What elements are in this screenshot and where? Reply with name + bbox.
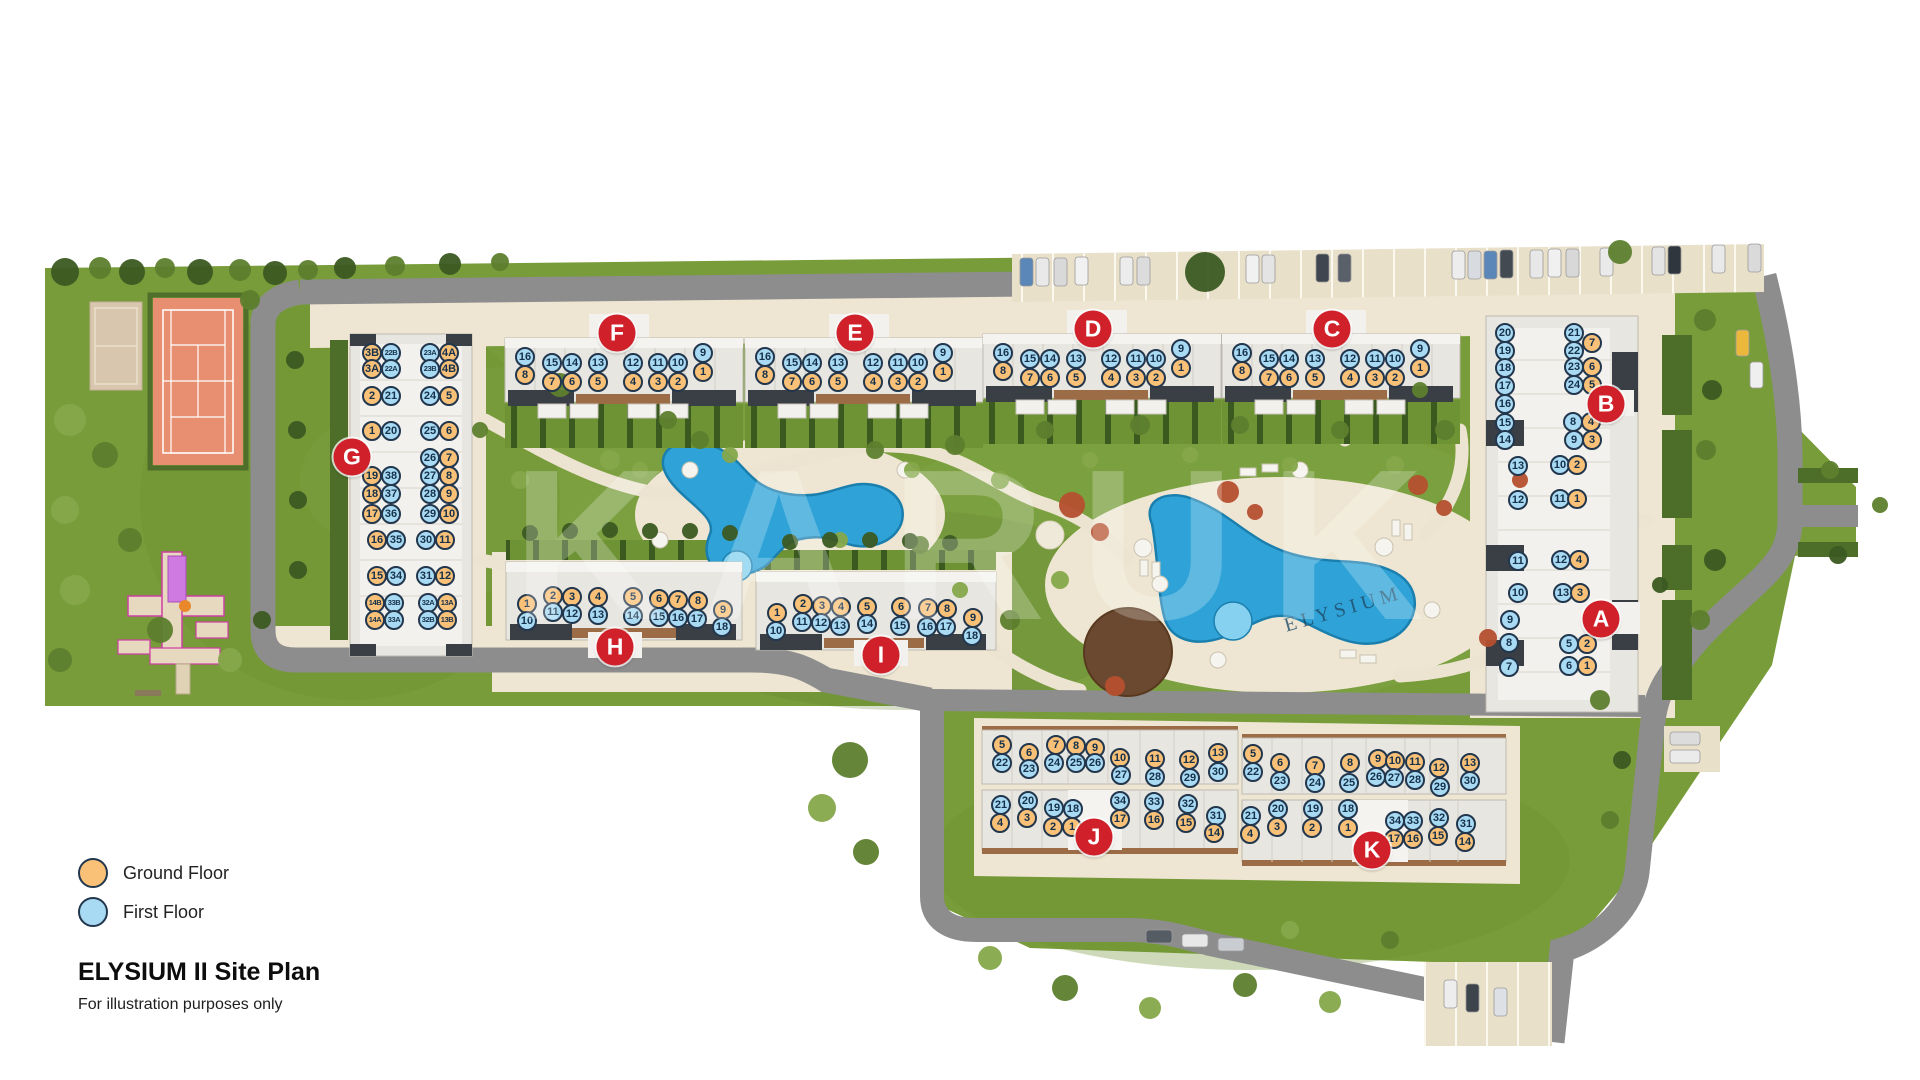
unit-G-33A: 33A (384, 610, 404, 630)
unit-K-16: 16 (1403, 829, 1423, 849)
unit-D-4: 4 (1101, 368, 1121, 388)
unit-I-2: 2 (793, 594, 813, 614)
unit-D-8: 8 (993, 361, 1013, 381)
unit-C-4: 4 (1340, 368, 1360, 388)
unit-I-6: 6 (891, 597, 911, 617)
unit-D-9: 9 (1171, 339, 1191, 359)
unit-K-4: 4 (1240, 824, 1260, 844)
unit-J-23: 23 (1019, 759, 1039, 779)
unit-J-15: 15 (1176, 813, 1196, 833)
site-plan-canvas: ELYSIUM (0, 0, 1920, 1080)
unit-K-8: 8 (1340, 753, 1360, 773)
unit-B-23: 23 (1564, 357, 1584, 377)
units-layer: 16815714613512411310291F1681571461351241… (0, 0, 1920, 1080)
unit-K-25: 25 (1339, 773, 1359, 793)
unit-D-10: 10 (1146, 349, 1166, 369)
building-label-A: A (1583, 601, 1620, 638)
unit-J-7: 7 (1046, 735, 1066, 755)
unit-J-21: 21 (991, 795, 1011, 815)
unit-C-13: 13 (1305, 349, 1325, 369)
unit-B-24: 24 (1564, 375, 1584, 395)
unit-B-13: 13 (1508, 456, 1528, 476)
unit-B-2: 2 (1567, 455, 1587, 475)
unit-I-4: 4 (831, 597, 851, 617)
unit-F-11: 11 (648, 353, 668, 373)
unit-C-6: 6 (1279, 368, 1299, 388)
unit-I-17: 17 (936, 617, 956, 637)
unit-F-12: 12 (623, 353, 643, 373)
unit-E-2: 2 (908, 372, 928, 392)
page-title: ELYSIUM II Site Plan (78, 958, 320, 987)
building-label-B: B (1588, 386, 1625, 423)
building-label-F: F (599, 315, 636, 352)
unit-F-3: 3 (648, 372, 668, 392)
unit-G-5: 5 (439, 386, 459, 406)
unit-K-1: 1 (1338, 818, 1358, 838)
unit-J-13: 13 (1208, 743, 1228, 763)
unit-H-5: 5 (623, 587, 643, 607)
unit-G-20: 20 (381, 421, 401, 441)
unit-K-13: 13 (1460, 753, 1480, 773)
building-label-I: I (863, 637, 900, 674)
unit-K-5: 5 (1243, 744, 1263, 764)
unit-J-34: 34 (1110, 791, 1130, 811)
unit-J-24: 24 (1044, 753, 1064, 773)
unit-I-13: 13 (830, 616, 850, 636)
unit-A-3: 3 (1570, 583, 1590, 603)
unit-G-12: 12 (435, 566, 455, 586)
unit-E-15: 15 (782, 353, 802, 373)
unit-B-7: 7 (1582, 333, 1602, 353)
unit-A-7: 7 (1499, 657, 1519, 677)
unit-I-7: 7 (918, 598, 938, 618)
unit-B-6: 6 (1582, 357, 1602, 377)
unit-G-18: 18 (362, 484, 382, 504)
unit-H-12: 12 (562, 604, 582, 624)
unit-D-2: 2 (1146, 368, 1166, 388)
unit-F-14: 14 (562, 353, 582, 373)
unit-G-4B: 4B (439, 359, 459, 379)
unit-F-8: 8 (515, 365, 535, 385)
unit-J-28: 28 (1145, 767, 1165, 787)
unit-E-5: 5 (828, 372, 848, 392)
unit-I-16: 16 (917, 617, 937, 637)
unit-K-29: 29 (1430, 777, 1450, 797)
unit-J-5: 5 (992, 735, 1012, 755)
unit-J-33: 33 (1144, 792, 1164, 812)
unit-H-16: 16 (668, 608, 688, 628)
unit-F-1: 1 (693, 362, 713, 382)
unit-G-17: 17 (362, 504, 382, 524)
unit-G-7: 7 (439, 448, 459, 468)
unit-G-15: 15 (367, 566, 387, 586)
unit-E-4: 4 (863, 372, 883, 392)
unit-C-1: 1 (1410, 358, 1430, 378)
unit-H-14: 14 (623, 606, 643, 626)
legend-ground-floor: Ground Floor (78, 858, 229, 888)
unit-G-14A: 14A (365, 610, 385, 630)
unit-G-28: 28 (420, 484, 440, 504)
unit-H-15: 15 (649, 607, 669, 627)
unit-F-5: 5 (588, 372, 608, 392)
unit-K-21: 21 (1241, 806, 1261, 826)
unit-J-4: 4 (990, 813, 1010, 833)
unit-F-4: 4 (623, 372, 643, 392)
unit-G-13B: 13B (437, 610, 457, 630)
unit-A-6: 6 (1559, 656, 1579, 676)
unit-D-7: 7 (1020, 368, 1040, 388)
building-label-G: G (334, 439, 371, 476)
unit-G-30: 30 (416, 530, 436, 550)
unit-K-34: 34 (1385, 811, 1405, 831)
unit-G-38: 38 (381, 466, 401, 486)
unit-J-3: 3 (1017, 808, 1037, 828)
unit-I-9: 9 (963, 608, 983, 628)
caption: ELYSIUM II Site Plan For illustration pu… (78, 958, 320, 1014)
unit-K-26: 26 (1366, 767, 1386, 787)
unit-C-9: 9 (1410, 339, 1430, 359)
building-label-K: K (1354, 832, 1391, 869)
unit-K-31: 31 (1456, 814, 1476, 834)
unit-G-25: 25 (420, 421, 440, 441)
ground-floor-swatch-icon (78, 858, 108, 888)
unit-C-12: 12 (1340, 349, 1360, 369)
unit-C-7: 7 (1259, 368, 1279, 388)
unit-A-8: 8 (1499, 633, 1519, 653)
unit-H-6: 6 (649, 589, 669, 609)
unit-E-14: 14 (802, 353, 822, 373)
unit-B-14: 14 (1495, 430, 1515, 450)
unit-E-8: 8 (755, 365, 775, 385)
unit-B-12: 12 (1508, 490, 1528, 510)
unit-J-16: 16 (1144, 810, 1164, 830)
unit-H-13: 13 (588, 605, 608, 625)
unit-J-32: 32 (1178, 794, 1198, 814)
unit-K-32: 32 (1429, 808, 1449, 828)
unit-K-11: 11 (1405, 752, 1425, 772)
unit-I-1: 1 (767, 603, 787, 623)
unit-K-20: 20 (1268, 799, 1288, 819)
unit-K-15: 15 (1428, 826, 1448, 846)
unit-J-17: 17 (1110, 809, 1130, 829)
unit-E-16: 16 (755, 347, 775, 367)
unit-K-18: 18 (1338, 799, 1358, 819)
unit-G-3A: 3A (362, 359, 382, 379)
unit-D-14: 14 (1040, 349, 1060, 369)
legend-label: First Floor (123, 902, 204, 923)
unit-K-22: 22 (1243, 762, 1263, 782)
unit-D-15: 15 (1020, 349, 1040, 369)
unit-J-22: 22 (992, 753, 1012, 773)
page-subtitle: For illustration purposes only (78, 996, 320, 1014)
unit-C-8: 8 (1232, 361, 1252, 381)
unit-G-26: 26 (420, 448, 440, 468)
unit-B-21: 21 (1564, 323, 1584, 343)
unit-J-30: 30 (1208, 762, 1228, 782)
unit-E-6: 6 (802, 372, 822, 392)
unit-G-37: 37 (381, 484, 401, 504)
unit-C-5: 5 (1305, 368, 1325, 388)
building-label-C: C (1314, 311, 1351, 348)
unit-I-12: 12 (811, 613, 831, 633)
unit-G-9: 9 (439, 484, 459, 504)
legend-label: Ground Floor (123, 863, 229, 884)
unit-A-1: 1 (1577, 656, 1597, 676)
unit-A-5: 5 (1559, 634, 1579, 654)
unit-H-11: 11 (543, 602, 563, 622)
unit-C-16: 16 (1232, 343, 1252, 363)
unit-G-22A: 22A (381, 359, 401, 379)
unit-B-18: 18 (1495, 358, 1515, 378)
unit-F-2: 2 (668, 372, 688, 392)
unit-E-9: 9 (933, 343, 953, 363)
unit-H-8: 8 (688, 591, 708, 611)
unit-A-9: 9 (1500, 610, 1520, 630)
unit-D-16: 16 (993, 343, 1013, 363)
unit-A-11: 11 (1508, 551, 1528, 571)
unit-G-23B: 23B (420, 359, 440, 379)
unit-J-26: 26 (1085, 753, 1105, 773)
unit-D-1: 1 (1171, 358, 1191, 378)
unit-F-6: 6 (562, 372, 582, 392)
unit-F-9: 9 (693, 343, 713, 363)
unit-D-5: 5 (1066, 368, 1086, 388)
unit-H-10: 10 (517, 611, 537, 631)
unit-F-13: 13 (588, 353, 608, 373)
unit-K-3: 3 (1267, 817, 1287, 837)
unit-K-12: 12 (1429, 758, 1449, 778)
unit-J-2: 2 (1043, 817, 1063, 837)
unit-K-23: 23 (1270, 771, 1290, 791)
unit-E-7: 7 (782, 372, 802, 392)
building-label-H: H (597, 629, 634, 666)
unit-H-18: 18 (712, 617, 732, 637)
unit-G-36: 36 (381, 504, 401, 524)
unit-K-24: 24 (1305, 773, 1325, 793)
unit-C-15: 15 (1259, 349, 1279, 369)
unit-J-19: 19 (1044, 798, 1064, 818)
unit-E-3: 3 (888, 372, 908, 392)
unit-B-8: 8 (1563, 412, 1583, 432)
unit-G-1: 1 (362, 421, 382, 441)
building-label-D: D (1075, 311, 1112, 348)
first-floor-swatch-icon (78, 897, 108, 927)
unit-C-11: 11 (1365, 349, 1385, 369)
unit-G-10: 10 (439, 504, 459, 524)
unit-J-12: 12 (1179, 750, 1199, 770)
unit-I-15: 15 (890, 616, 910, 636)
unit-J-27: 27 (1111, 765, 1131, 785)
unit-D-3: 3 (1126, 368, 1146, 388)
unit-G-31: 31 (416, 566, 436, 586)
unit-A-2: 2 (1577, 634, 1597, 654)
unit-C-14: 14 (1279, 349, 1299, 369)
unit-J-29: 29 (1180, 768, 1200, 788)
unit-K-6: 6 (1270, 753, 1290, 773)
unit-B-16: 16 (1495, 394, 1515, 414)
unit-K-19: 19 (1303, 799, 1323, 819)
unit-I-18: 18 (962, 626, 982, 646)
unit-G-29: 29 (420, 504, 440, 524)
unit-E-11: 11 (888, 353, 908, 373)
unit-G-16: 16 (367, 530, 387, 550)
unit-J-18: 18 (1063, 799, 1083, 819)
unit-G-11: 11 (435, 530, 455, 550)
unit-H-7: 7 (668, 590, 688, 610)
unit-E-10: 10 (908, 353, 928, 373)
unit-E-1: 1 (933, 362, 953, 382)
unit-K-2: 2 (1302, 818, 1322, 838)
unit-F-16: 16 (515, 347, 535, 367)
unit-C-2: 2 (1385, 368, 1405, 388)
unit-F-7: 7 (542, 372, 562, 392)
unit-G-34: 34 (386, 566, 406, 586)
unit-F-15: 15 (542, 353, 562, 373)
unit-B-20: 20 (1495, 323, 1515, 343)
unit-G-21: 21 (381, 386, 401, 406)
unit-C-3: 3 (1365, 368, 1385, 388)
unit-G-32B: 32B (418, 610, 438, 630)
unit-K-27: 27 (1384, 768, 1404, 788)
unit-D-6: 6 (1040, 368, 1060, 388)
building-label-J: J (1076, 819, 1113, 856)
unit-J-25: 25 (1066, 753, 1086, 773)
unit-I-8: 8 (937, 599, 957, 619)
unit-K-30: 30 (1460, 771, 1480, 791)
unit-I-10: 10 (766, 621, 786, 641)
unit-K-33: 33 (1403, 811, 1423, 831)
unit-G-24: 24 (420, 386, 440, 406)
unit-B-3: 3 (1582, 430, 1602, 450)
unit-A-10: 10 (1508, 583, 1528, 603)
unit-G-27: 27 (420, 466, 440, 486)
unit-G-35: 35 (386, 530, 406, 550)
unit-J-14: 14 (1204, 823, 1224, 843)
unit-D-11: 11 (1126, 349, 1146, 369)
unit-H-4: 4 (588, 587, 608, 607)
unit-D-12: 12 (1101, 349, 1121, 369)
unit-B-1: 1 (1567, 489, 1587, 509)
unit-J-11: 11 (1145, 749, 1165, 769)
building-label-E: E (837, 315, 874, 352)
unit-G-8: 8 (439, 466, 459, 486)
unit-A-12: 12 (1551, 550, 1571, 570)
unit-G-2: 2 (362, 386, 382, 406)
unit-H-17: 17 (687, 609, 707, 629)
unit-B-9: 9 (1564, 430, 1584, 450)
unit-K-14: 14 (1455, 832, 1475, 852)
unit-G-6: 6 (439, 421, 459, 441)
unit-E-12: 12 (863, 353, 883, 373)
unit-K-28: 28 (1405, 770, 1425, 790)
unit-C-10: 10 (1385, 349, 1405, 369)
legend-first-floor: First Floor (78, 897, 229, 927)
unit-D-13: 13 (1066, 349, 1086, 369)
unit-B-17: 17 (1495, 376, 1515, 396)
unit-F-10: 10 (668, 353, 688, 373)
unit-I-14: 14 (857, 614, 877, 634)
legend: Ground Floor First Floor (78, 858, 229, 936)
unit-E-13: 13 (828, 353, 848, 373)
unit-I-11: 11 (792, 612, 812, 632)
unit-A-4: 4 (1569, 550, 1589, 570)
